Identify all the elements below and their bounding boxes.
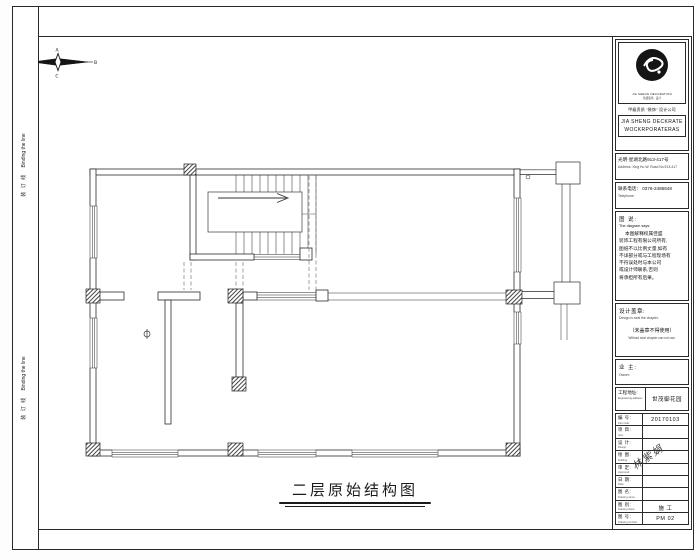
table-row: 日 期:Date: [615, 475, 689, 487]
row-value [643, 426, 688, 437]
compass-letter-bottom: C [55, 74, 58, 80]
qualification-line: 甲级资质 “装饰” 设计公司 [618, 107, 686, 113]
stamp-label-en: Design is seal the chapter. [619, 316, 685, 320]
note-line: 图纸不以比例丈量,如有 [619, 245, 685, 252]
notes-heading-en: The diagram says: [619, 224, 685, 228]
window [112, 449, 178, 457]
window [352, 449, 438, 457]
drawing-title: 二层原始结构图 [255, 479, 455, 500]
column [184, 164, 196, 175]
balcony-column [554, 282, 580, 304]
diagram-notes-section: 图 说: The diagram says: 本图解释权属佳盛 装饰工程有限公司… [615, 211, 689, 301]
balcony [520, 162, 580, 340]
window [513, 312, 521, 344]
address-zh: 光明·星湖北路913-417号 [618, 157, 686, 163]
interior-railing [257, 293, 316, 301]
compass-letter-top: A [55, 48, 59, 54]
title-underline [279, 502, 431, 504]
table-row: 绘 图:Drafting: [615, 450, 689, 462]
company-name-line1: JIA SHENG DECKRATE [619, 119, 685, 127]
outer-walls [90, 169, 520, 456]
note-line: 将承担所有后果。 [619, 274, 685, 281]
title-underline-thin [285, 506, 425, 507]
address-en: Address: Xing Hu W. Road No.913-417 [618, 165, 686, 169]
stamp-warning-zh: （未盖章不得使用） [619, 327, 685, 334]
window [89, 206, 97, 258]
title-block: JIA SHENG DECORATION 佳盛装饰 · 设计 甲级资质 “装饰”… [612, 36, 692, 530]
window [513, 198, 521, 272]
cad-drawing-sheet: { "sheet": { "title": "二层原始结构图" }, "bind… [0, 0, 700, 560]
project-address-value: 世茂御花园 [646, 388, 688, 410]
row-value [643, 488, 688, 499]
table-row: 图 名:Drawing name: [615, 487, 689, 499]
owner-label-zh: 业 主: [619, 363, 685, 371]
row-value: PM 02 [643, 513, 688, 523]
table-row: 图 号:Drawing number:PM 02 [615, 512, 689, 524]
telephone-zh: 联系电话： 0376-2486648 [618, 186, 686, 192]
column [506, 290, 522, 304]
table-row: 图 别:Drawing class:施 工 [615, 500, 689, 512]
beam-lines [328, 293, 506, 300]
company-name-box: JIA SHENG DECKRATE WOCKRPORATERAS [618, 115, 686, 137]
column [506, 443, 520, 456]
design-stamp-section: 设计盖章: Design is seal the chapter. （未盖章不得… [615, 303, 689, 357]
floor-plan: A B C D [38, 36, 612, 530]
binding-text-zh: 装 订 线 [21, 174, 27, 197]
row-value [643, 476, 688, 487]
telephone-en: Telephone: [618, 194, 686, 198]
note-line: 或设计师联系,否则 [619, 266, 685, 273]
table-row: 审 定:Approved: [615, 463, 689, 475]
hatched-columns [86, 164, 522, 456]
note-line: 装饰工程有限公司所有, [619, 237, 685, 244]
address-section: 光明·星湖北路913-417号 Address: Xing Hu W. Road… [615, 153, 689, 180]
table-row: 设 计:Design: [615, 438, 689, 450]
compass-letter-right: B [94, 60, 97, 66]
stair-railing [254, 255, 300, 260]
center-line-symbol [144, 329, 150, 339]
column [86, 289, 100, 303]
company-name-line2: WOCKRPORATERAS [619, 127, 685, 135]
note-line: 本图解释权属佳盛 [619, 230, 685, 237]
binding-text-zh: 装 订 线 [21, 397, 27, 420]
windows [89, 198, 521, 457]
drawing-title-block: 二层原始结构图 [255, 479, 455, 507]
note-line: 不符误处时与本公司 [619, 259, 685, 266]
row-value: 20170103 [643, 414, 688, 425]
column [86, 443, 100, 456]
window [89, 318, 97, 368]
window [258, 449, 316, 457]
binding-text-lower: 装 订 线 Binding the line [20, 342, 30, 434]
telephone-section: 联系电话： 0376-2486648 Telephone: [615, 182, 689, 209]
owner-label-en: Owner: [619, 373, 685, 377]
project-address-label: 工程地址: Engineering address: [616, 388, 646, 410]
binding-text-en: Binding the line [21, 356, 27, 390]
column [232, 377, 246, 391]
binding-text-upper: 装 订 线 Binding the line [20, 119, 30, 211]
stamp-warning-en: Without seal chapter can not use. [619, 336, 685, 340]
title-block-table: 编 号:Part code:20170103 项 目:Item: 设 计:Des… [615, 413, 689, 525]
logo-box: JIA SHENG DECORATION 佳盛装饰 · 设计 [618, 42, 686, 104]
owner-section: 业 主: Owner: [615, 359, 689, 385]
balcony-column [556, 162, 580, 184]
stamp-label-zh: 设计盖章: [619, 307, 685, 315]
column [228, 443, 243, 456]
row-value [643, 451, 688, 462]
binding-text-en: Binding the line [21, 133, 27, 167]
row-value: 施 工 [643, 501, 688, 512]
note-line: 不详部分或与工程现场有 [619, 252, 685, 259]
corner-detail [526, 175, 530, 179]
compass-icon: A B C D [38, 48, 97, 80]
company-logo-section: JIA SHENG DECORATION 佳盛装饰 · 设计 甲级资质 “装饰”… [615, 39, 689, 151]
company-logo-icon [632, 46, 672, 86]
row-value [643, 439, 688, 450]
notes-heading-zh: 图 说: [619, 215, 685, 223]
logo-subcaption: 佳盛装饰 · 设计 [619, 96, 685, 100]
table-row: 编 号:Part code:20170103 [615, 413, 689, 425]
staircase [208, 175, 316, 260]
column [228, 289, 243, 303]
project-address-row: 工程地址: Engineering address: 世茂御花园 [615, 387, 689, 411]
row-value [643, 464, 688, 475]
table-row: 项 目:Item: [615, 425, 689, 437]
